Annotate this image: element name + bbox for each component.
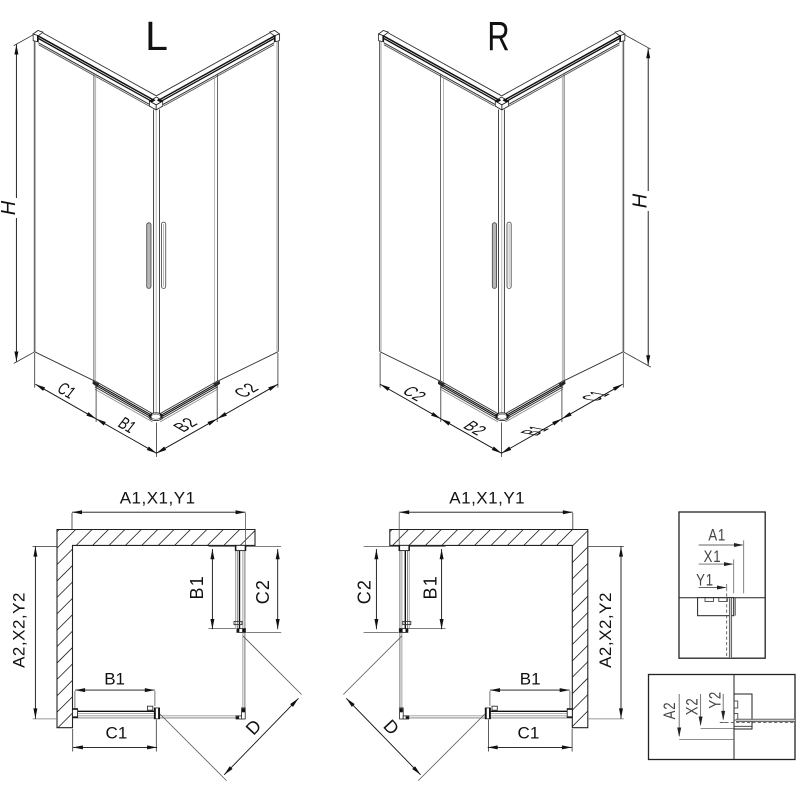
svg-text:A1,X1,Y1: A1,X1,Y1 bbox=[449, 488, 525, 507]
svg-text:A2: A2 bbox=[661, 702, 680, 720]
svg-text:X1: X1 bbox=[704, 547, 722, 566]
svg-text:Y2: Y2 bbox=[706, 691, 725, 709]
svg-text:L: L bbox=[145, 13, 168, 59]
svg-text:B1: B1 bbox=[520, 669, 541, 688]
svg-text:H: H bbox=[0, 200, 20, 215]
svg-text:A1,X1,Y1: A1,X1,Y1 bbox=[120, 488, 196, 507]
svg-text:X2: X2 bbox=[683, 698, 702, 716]
svg-text:R: R bbox=[487, 13, 509, 59]
svg-text:C1: C1 bbox=[106, 723, 128, 742]
svg-text:B1: B1 bbox=[421, 575, 441, 599]
svg-text:B1: B1 bbox=[187, 575, 207, 599]
svg-text:C2: C2 bbox=[354, 579, 374, 604]
svg-text:C2: C2 bbox=[253, 579, 273, 604]
svg-text:A2,X2,Y2: A2,X2,Y2 bbox=[596, 592, 615, 668]
svg-text:C2: C2 bbox=[229, 380, 264, 401]
svg-text:C2: C2 bbox=[398, 383, 431, 404]
svg-text:B2: B2 bbox=[458, 418, 491, 439]
svg-text:A1: A1 bbox=[708, 526, 726, 545]
svg-text:B1: B1 bbox=[115, 413, 138, 438]
svg-text:A2,X2,Y2: A2,X2,Y2 bbox=[9, 592, 28, 668]
svg-text:C1: C1 bbox=[575, 390, 617, 403]
svg-text:B1: B1 bbox=[104, 669, 125, 688]
svg-text:C1: C1 bbox=[518, 723, 540, 742]
svg-text:C1: C1 bbox=[54, 379, 78, 404]
svg-text:H: H bbox=[630, 193, 652, 208]
svg-text:B2: B2 bbox=[168, 415, 203, 435]
svg-text:B1: B1 bbox=[515, 424, 556, 437]
